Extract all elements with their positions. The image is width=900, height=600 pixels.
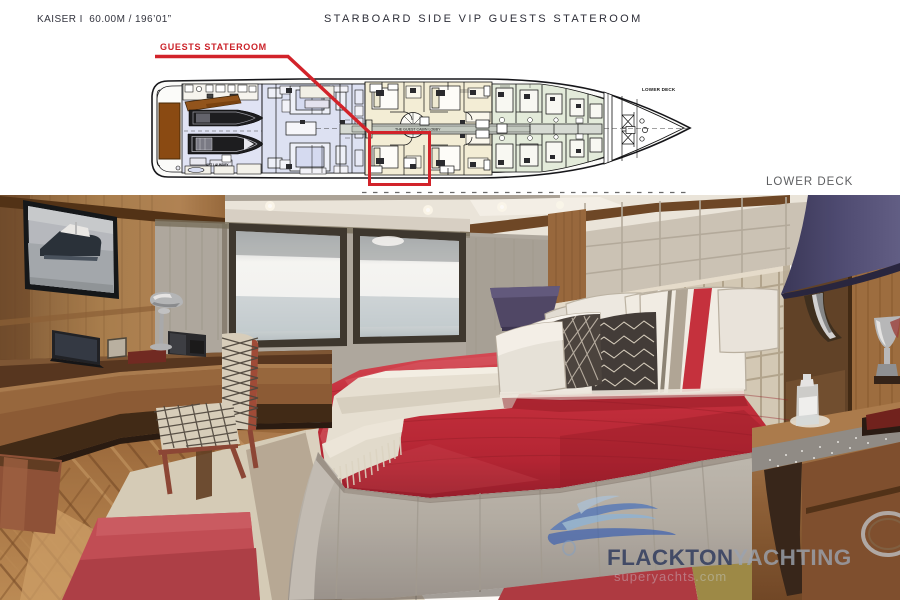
svg-text:AFT LAUNDRY: AFT LAUNDRY (206, 163, 229, 167)
svg-text:LOWER DECK: LOWER DECK (642, 87, 676, 92)
